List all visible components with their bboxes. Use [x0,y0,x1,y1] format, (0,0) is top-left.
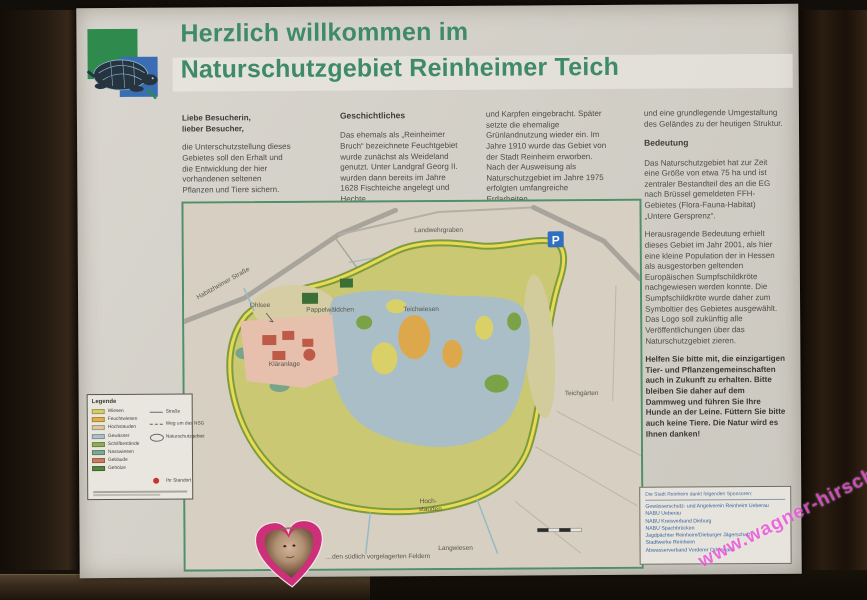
sign-title-line2: Naturschutzgebiet Reinheimer Teich [181,53,620,85]
greeting-body: die Unterschutzstellung dieses Gebietes … [182,142,294,196]
legend-smallprint-line [93,494,160,496]
legend-swatch [92,417,105,422]
scale-bar [537,528,581,532]
legend-symbol-item: Straße [150,408,205,414]
legend-symbol-item: Ihr Standort [150,477,205,483]
path-dashed-icon [150,421,163,427]
label-teichgaerten: Teichgärten [565,390,599,397]
info-sign-panel: Herzlich willkommen im Naturschutzgebiet… [76,4,801,578]
reserve-outline-icon [150,434,163,440]
parking-icon: P [548,231,564,247]
history-body: Das ehemals als „Reinheimer Bruch“ bezei… [340,130,462,205]
visitor-appeal: Helfen Sie bitte mit, die einzigartigen … [645,354,786,440]
text-column-importance: und eine grundlegende Umgestaltung des G… [644,108,786,448]
label-pappelwaeldchen: Pappelwäldchen [306,307,354,314]
legend-title: Legende [92,399,188,406]
label-klaeranlage: Kläranlage [269,361,301,368]
label-teichwiesen: Teichwiesen [403,306,439,313]
importance-body2: Herausragende Bedeutung erhielt dieses G… [645,229,786,347]
importance-intro: und eine grundlegende Umgestaltung des G… [644,108,784,130]
legend-swatch [92,450,105,455]
greeting-salutation: Liebe Besucherin, lieber Besucher, [182,113,294,135]
label-ohlsee: Ohlsee [250,302,271,309]
sewage-plant-area [240,315,338,389]
wood-frame-left [0,0,80,600]
label-hochstauden-1: Hoch- [420,498,437,505]
legend-symbols: Straße Weg um das NSG Naturschutzgebiet … [150,408,205,490]
location-dot-icon [150,478,163,484]
map-legend: Legende Wiesen Feuchtwiesen Hochstauden … [87,394,194,501]
legend-symbol-item: Weg um das NSG [150,421,205,427]
road-line-icon [150,409,163,415]
heart-photo-sticker [252,516,328,594]
sign-title-line1: Herzlich willkommen im [180,18,468,49]
label-langwiesen: Langwiesen [438,545,473,552]
turtle-logo-icon [86,28,160,104]
reserve-map-graphic: P Habitzheimer Straße Landwehrgraben Ohl… [183,201,641,570]
legend-swatch [92,409,105,414]
text-column-history-cont: und Karpfen eingebracht. Später setzte d… [486,109,609,213]
sponsor-item: Gewässerschutz- und Angelverein Reinheim… [645,503,785,511]
label-hochstauden-2: stauden [419,506,443,513]
text-column-greeting: Liebe Besucherin, lieber Besucher, die U… [182,113,295,204]
history-heading: Geschichtliches [340,110,462,122]
legend-swatch [92,442,105,447]
photo-of-info-board: Herzlich willkommen im Naturschutzgebiet… [0,0,867,600]
legend-symbol-item: Naturschutzgebiet [150,433,205,439]
legend-swatch [92,458,105,463]
heart-photo [264,528,316,580]
legend-swatch [92,434,105,439]
label-landwehrgraben: Landwehrgraben [414,227,463,234]
importance-body: Das Naturschutzgebiet hat zur Zeit eine … [644,157,784,222]
map-caption: …den südlich vorgelagerten Feldern [326,553,431,561]
legend-smallprint-line [93,491,187,494]
sponsors-heading: Die Stadt Reinheim dankt folgenden Spons… [645,491,785,501]
legend-swatch [92,425,105,430]
reserve-map: P Habitzheimer Straße Landwehrgraben Ohl… [181,199,643,572]
legend-swatch [92,466,105,471]
text-column-history: Geschichtliches Das ehemals als „Reinhei… [340,110,463,213]
importance-heading: Bedeutung [644,137,784,149]
history-body-continued: und Karpfen eingebracht. Später setzte d… [486,109,609,205]
svg-text:P: P [552,233,560,247]
